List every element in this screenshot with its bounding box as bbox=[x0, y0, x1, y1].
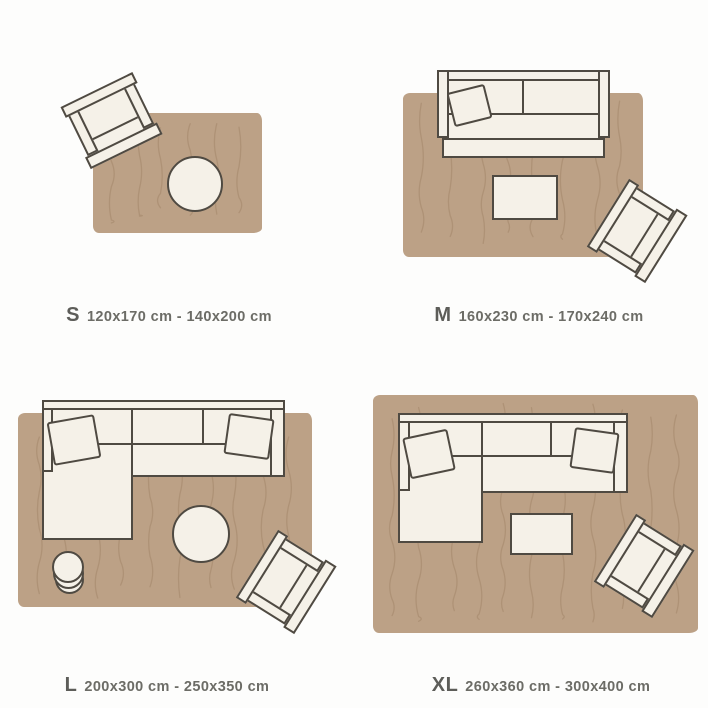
sectional-chaise-edge bbox=[481, 423, 483, 541]
sofa-cushion-divider bbox=[522, 80, 524, 115]
size-caption: S120x170 cm - 140x200 cm bbox=[0, 304, 346, 327]
sectional-cushion-divider bbox=[550, 423, 552, 455]
round-coffee-table bbox=[172, 505, 230, 563]
coffee-table bbox=[510, 513, 573, 555]
sectional-chaise-edge bbox=[131, 410, 133, 538]
size-range: 260x360 cm - 300x400 cm bbox=[465, 679, 650, 695]
scene-l bbox=[0, 354, 354, 708]
size-caption: L200x300 cm - 250x350 cm bbox=[0, 674, 344, 697]
panel-size-xl: XL260x360 cm - 300x400 cm bbox=[354, 354, 708, 708]
panel-size-s: S120x170 cm - 140x200 cm bbox=[0, 0, 354, 354]
pillow-left bbox=[47, 414, 102, 466]
panel-size-m: M160x230 cm - 170x240 cm bbox=[354, 0, 708, 354]
panel-size-l: L200x300 cm - 250x350 cm bbox=[0, 354, 354, 708]
sectional-sofa bbox=[42, 400, 285, 540]
size-caption: XL260x360 cm - 300x400 cm bbox=[364, 674, 708, 697]
round-side-table bbox=[167, 156, 223, 212]
size-range: 120x170 cm - 140x200 cm bbox=[87, 309, 272, 325]
scene-m bbox=[354, 0, 708, 354]
sectional-cushion-divider bbox=[202, 410, 204, 445]
scene-s bbox=[0, 0, 354, 354]
sectional-backrest bbox=[42, 400, 285, 410]
size-letter: L bbox=[65, 674, 78, 696]
sectional-backrest bbox=[398, 413, 628, 423]
size-letter: S bbox=[66, 304, 80, 326]
sofa bbox=[437, 70, 610, 158]
pillow-right bbox=[569, 427, 619, 474]
size-caption: M160x230 cm - 170x240 cm bbox=[362, 304, 708, 327]
size-range: 200x300 cm - 250x350 cm bbox=[84, 679, 269, 695]
size-letter: M bbox=[434, 304, 451, 326]
size-range: 160x230 cm - 170x240 cm bbox=[459, 309, 644, 325]
size-letter: XL bbox=[432, 674, 459, 696]
sofa-front-edge bbox=[442, 138, 605, 158]
sofa-backrest bbox=[447, 70, 600, 81]
coffee-table bbox=[492, 175, 558, 220]
scene-xl bbox=[354, 354, 708, 708]
rug-size-guide: S120x170 cm - 140x200 cm bbox=[0, 0, 708, 708]
pillow-right bbox=[223, 413, 274, 460]
side-table-top bbox=[52, 551, 84, 583]
